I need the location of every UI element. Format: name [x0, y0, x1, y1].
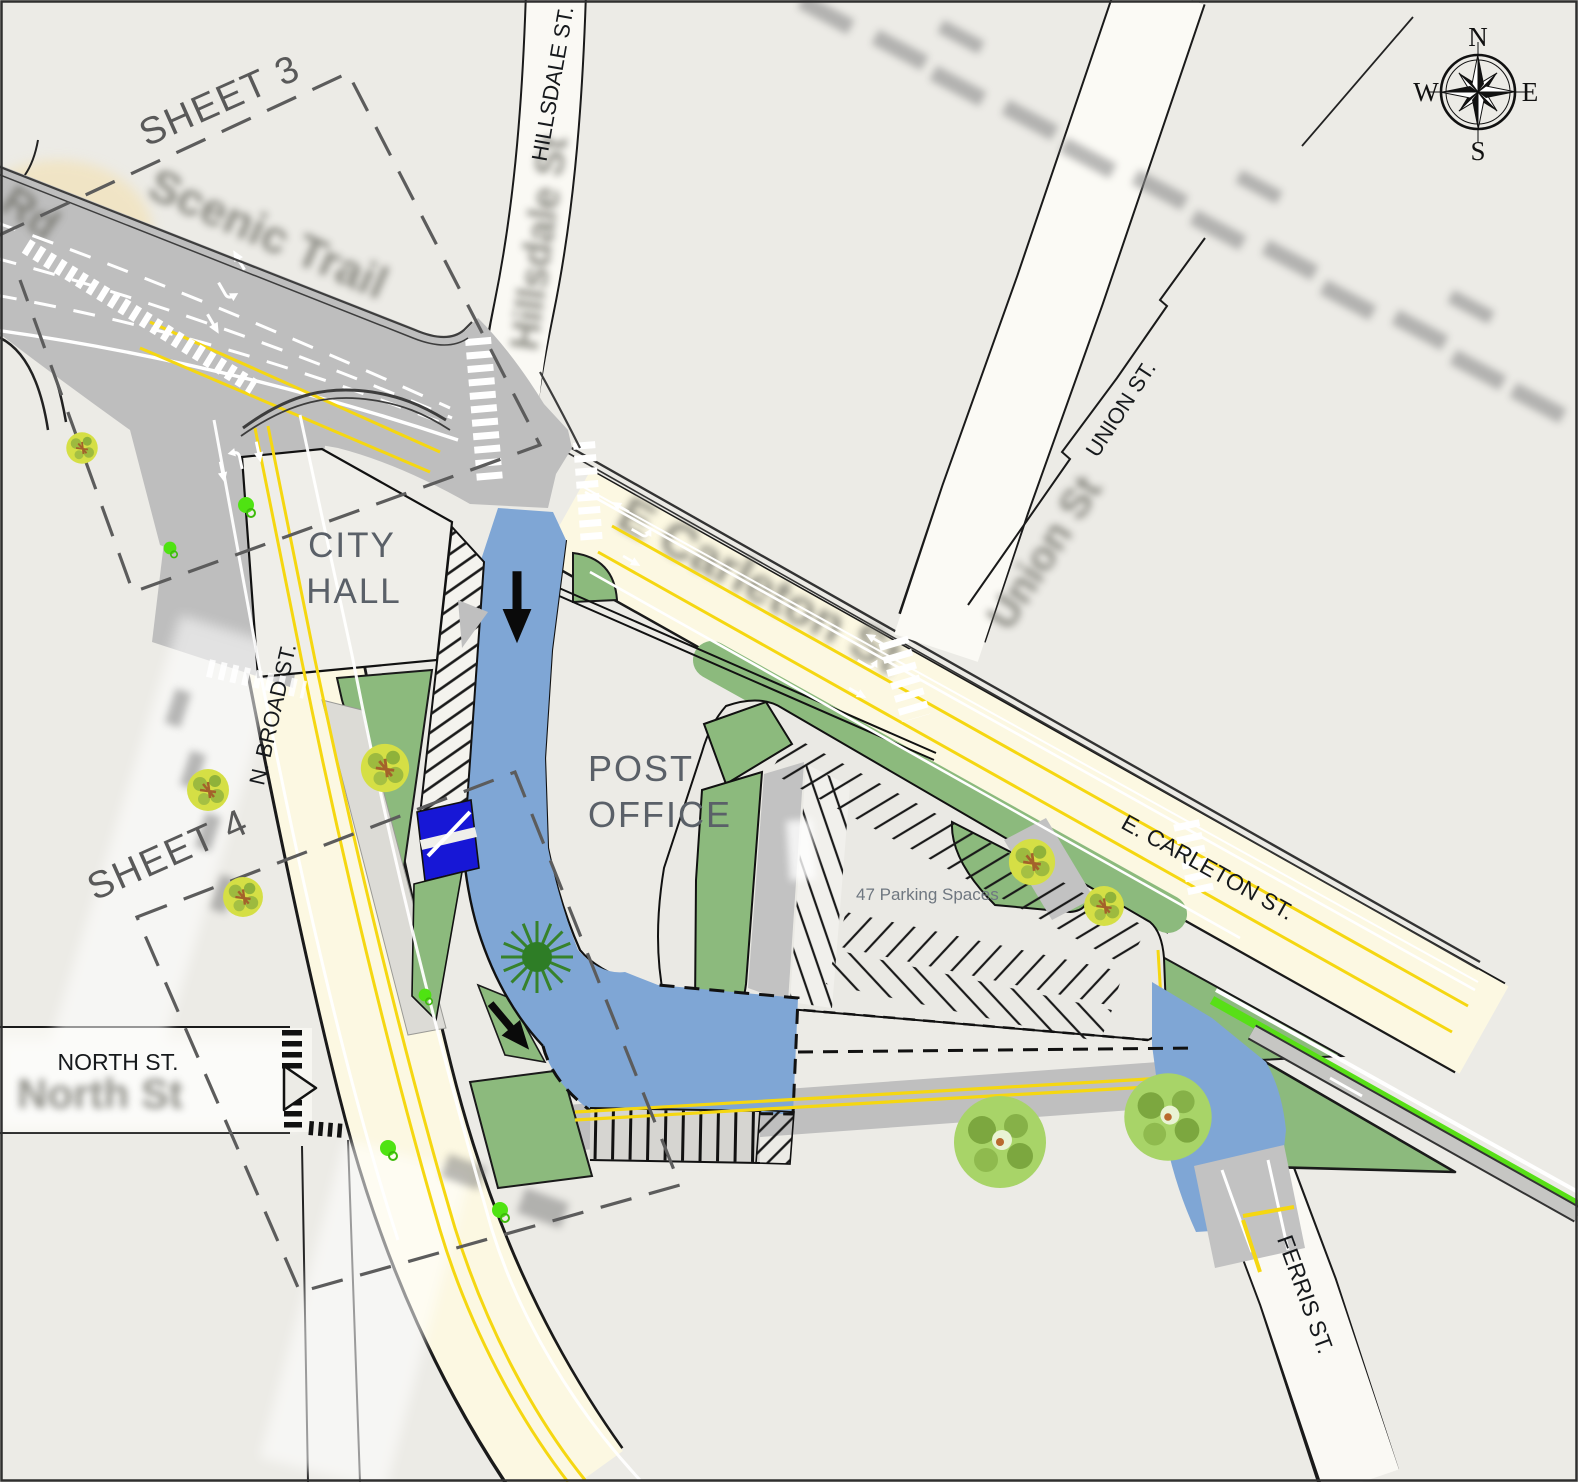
tree: [66, 432, 98, 464]
tree: [1084, 886, 1124, 926]
post-office-label-line1: POST: [588, 748, 694, 789]
parking-count-note: 47 Parking Spaces: [856, 885, 999, 904]
site-plan-map: Scenic Trail Rd Hillsdale St Union St E …: [0, 0, 1578, 1482]
underlay-north-text: North St: [17, 1070, 183, 1117]
north-street-label: NORTH ST.: [58, 1049, 179, 1075]
tree: [361, 744, 409, 792]
large-tree: [1124, 1073, 1211, 1160]
compass-north-label: N: [1468, 22, 1488, 52]
compass-south-label: S: [1470, 136, 1485, 166]
site-plan-page: Scenic Trail Rd Hillsdale St Union St E …: [0, 0, 1578, 1482]
compass-east-label: E: [1522, 77, 1539, 107]
post-office-label-line2: OFFICE: [588, 794, 732, 835]
tree: [1009, 839, 1055, 885]
city-hall-label-line2: HALL: [306, 572, 402, 611]
parked-car-white-blur: [786, 819, 816, 881]
crossing-band-hatch-wedge: [756, 1110, 794, 1164]
compass-west-label: W: [1413, 77, 1439, 107]
large-tree: [954, 1096, 1046, 1188]
city-hall-label-line1: CITY: [308, 526, 396, 565]
spiky-tree: [501, 921, 573, 993]
tree: [187, 769, 229, 811]
tree: [223, 877, 263, 917]
